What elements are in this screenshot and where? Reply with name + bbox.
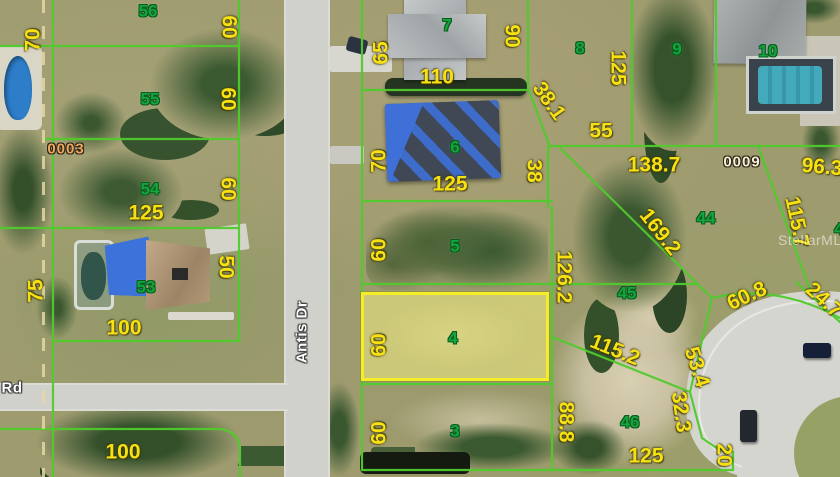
dimension-label: 138.7	[628, 155, 681, 176]
dimension-label: 60	[369, 421, 390, 444]
dimension-label: 70	[23, 28, 44, 51]
dimension-label: 110	[420, 67, 454, 88]
lot-number: 4	[448, 330, 457, 347]
lot-number: 9	[672, 41, 681, 58]
dimension-label: 60	[369, 238, 390, 261]
lot-number: 45	[618, 285, 637, 302]
lot-number: 7	[442, 17, 451, 34]
dimension-label: 125	[432, 174, 467, 195]
dimension-label: 125	[608, 50, 629, 85]
dimension-label: 55	[589, 121, 612, 142]
lot-number: 6	[450, 139, 459, 156]
dimension-label: 65	[371, 41, 392, 64]
street-label: Rd	[2, 381, 23, 396]
lot-number: 46	[621, 414, 640, 431]
parked-car	[803, 343, 831, 358]
lot-number: 56	[139, 3, 158, 20]
lot-number: 54	[141, 181, 160, 198]
satellite-plat-map: 706060601257550100100659011038.155701253…	[0, 0, 840, 477]
lot-number: 53	[137, 279, 156, 296]
dimension-label: 60	[219, 15, 240, 38]
dimension-label: 125	[628, 446, 663, 467]
parcel-id: 0009	[723, 155, 760, 170]
dimension-label: 50	[216, 255, 237, 278]
dimension-label: 125	[128, 203, 163, 224]
dimension-label: 90	[502, 24, 523, 47]
dimension-label: 20	[714, 443, 735, 466]
dimension-label: 88.8	[556, 402, 577, 443]
lot-number: 44	[697, 210, 716, 227]
lot-number: 10	[759, 43, 778, 60]
parcel-id: 0003	[47, 142, 84, 157]
street-label: Antis Dr	[295, 301, 310, 363]
dimension-label: 60	[369, 333, 390, 356]
dimension-label: 75	[26, 279, 47, 302]
dimension-label: 32.3	[668, 390, 694, 433]
dimension-label: 60	[218, 177, 239, 200]
dimension-label: 96.3	[801, 155, 840, 179]
lot-number: 8	[575, 40, 584, 57]
dimension-label: 100	[105, 442, 140, 463]
parked-car	[740, 410, 757, 442]
lot-number: 3	[450, 423, 459, 440]
dimension-label: 126.2	[554, 251, 575, 304]
dimension-label: 60	[218, 87, 239, 110]
watermark: StellarMLS	[778, 232, 840, 248]
section-dashed-line	[42, 0, 45, 477]
lot-number: 5	[450, 238, 459, 255]
dimension-label: 38	[524, 159, 545, 182]
lot-number: 55	[141, 91, 160, 108]
dimension-label: 100	[106, 318, 141, 339]
dimension-label: 70	[369, 149, 390, 172]
